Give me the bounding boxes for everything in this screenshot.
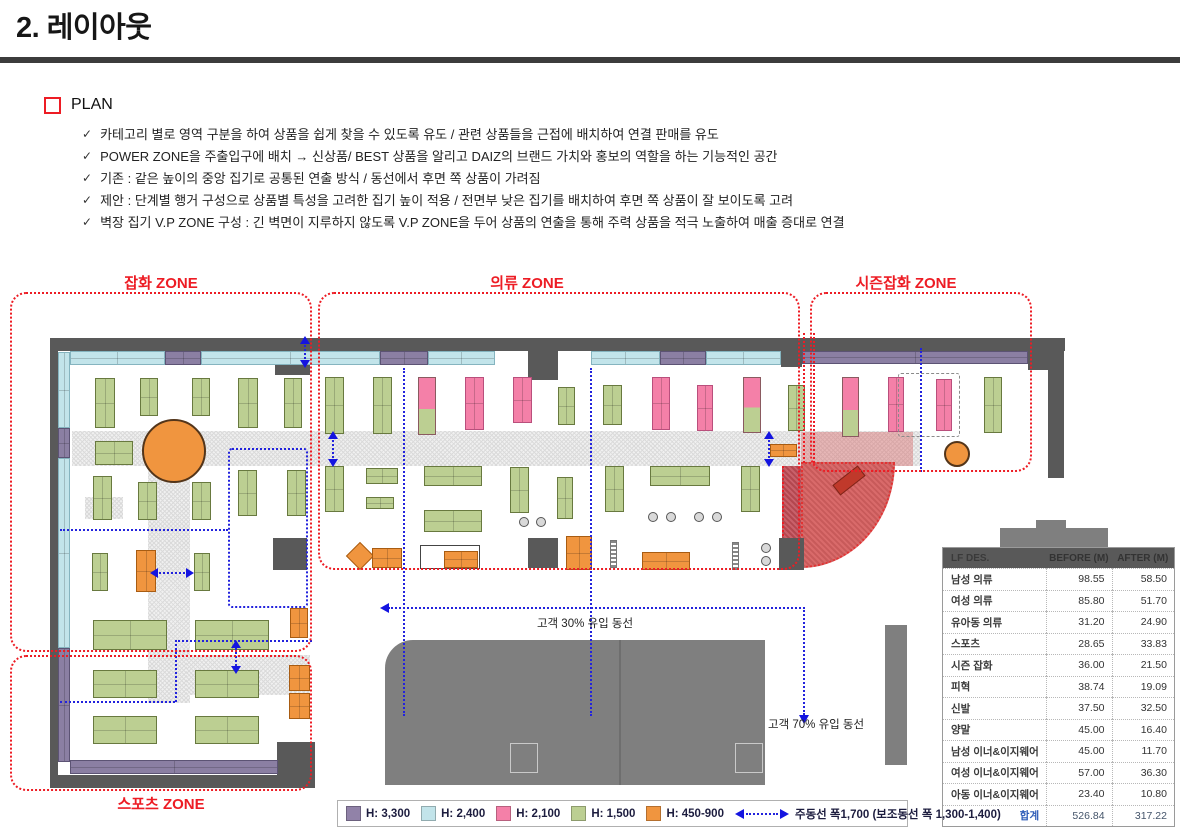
table-row: 아동 이너&이지웨어23.4010.80	[943, 783, 1174, 805]
legend-item: H: 1,500	[571, 806, 635, 821]
row-label: 여성 이너&이지웨어	[943, 762, 1046, 784]
table-row: 시즌 잡화36.0021.50	[943, 654, 1174, 676]
table-row: 피혁38.7419.09	[943, 676, 1174, 698]
table-header-after: AFTER (M)	[1112, 548, 1174, 568]
row-value: 36.00	[1046, 654, 1111, 676]
legend-swatch-icon	[571, 806, 586, 821]
zone-boundary-season	[810, 292, 1032, 472]
arrow-right-icon	[780, 809, 789, 819]
row-value: 37.50	[1046, 697, 1111, 719]
mall-block	[1036, 520, 1066, 529]
legend-item-label: H: 450-900	[666, 808, 724, 820]
legend-item-label: H: 2,100	[516, 808, 560, 820]
table-row: 스포츠28.6533.83	[943, 633, 1174, 655]
legend-item: H: 3,300	[346, 806, 410, 821]
row-value: 526.84	[1046, 805, 1111, 827]
row-label: 스포츠	[943, 633, 1046, 655]
power-zone-boundary-line	[803, 333, 805, 463]
legend-flow-label: 주동선 폭1,700 (보조동선 폭 1,300-1,400)	[795, 806, 1001, 822]
power-zone-boundary-line	[813, 333, 815, 463]
table-body: 남성 의류98.5558.50여성 의류85.8051.70유아동 의류31.2…	[943, 568, 1174, 826]
legend-items: H: 3,300H: 2,400H: 2,100H: 1,500H: 450-9…	[346, 806, 735, 821]
legend-item: H: 2,400	[421, 806, 485, 821]
row-value: 45.00	[1046, 719, 1111, 741]
row-value: 28.65	[1046, 633, 1111, 655]
row-value: 51.70	[1112, 590, 1174, 612]
row-label: 남성 의류	[943, 568, 1046, 590]
legend-flow-item: 주동선 폭1,700 (보조동선 폭 1,300-1,400)	[735, 806, 1001, 822]
zone-boundary-sports	[10, 655, 312, 791]
table-row: 남성 의류98.5558.50	[943, 568, 1174, 590]
row-value: 10.80	[1112, 783, 1174, 805]
table-row: 남성 이너&이지웨어45.0011.70	[943, 740, 1174, 762]
row-label: 피혁	[943, 676, 1046, 698]
table-row: 양말45.0016.40	[943, 719, 1174, 741]
row-value: 85.80	[1046, 590, 1111, 612]
lf-area-table: LF DES. BEFORE (M) AFTER (M) 남성 의류98.555…	[942, 547, 1175, 827]
table-row: 여성 의류85.8051.70	[943, 590, 1174, 612]
row-value: 58.50	[1112, 568, 1174, 590]
legend-swatch-icon	[496, 806, 511, 821]
table-header-row: LF DES. BEFORE (M) AFTER (M)	[943, 548, 1174, 568]
mall-block	[1000, 528, 1108, 547]
table-header-lf-des: LF DES.	[943, 548, 1046, 568]
row-value: 33.83	[1112, 633, 1174, 655]
row-value: 16.40	[1112, 719, 1174, 741]
mall-divider	[619, 640, 621, 785]
row-label: 유아동 의류	[943, 611, 1046, 633]
row-label: 여성 의류	[943, 590, 1046, 612]
zone-label-japwha: 잡화 ZONE	[71, 272, 251, 293]
legend-item-label: H: 3,300	[366, 808, 410, 820]
legend-swatch-icon	[346, 806, 361, 821]
flow-30-line	[388, 607, 805, 609]
mall-block	[885, 625, 907, 765]
flow-arrow-left	[380, 603, 389, 613]
zone-boundary-uiryu	[318, 292, 800, 570]
row-label: 신발	[943, 697, 1046, 719]
legend-item: H: 2,100	[496, 806, 560, 821]
legend: H: 3,300H: 2,400H: 2,100H: 1,500H: 450-9…	[337, 800, 908, 827]
row-value: 21.50	[1112, 654, 1174, 676]
flow-30-label: 고객 30% 유입 동선	[505, 615, 665, 631]
mall-notch	[510, 743, 538, 773]
slide-canvas: { "doc": {"title": "2. 레이아웃"}, "plan_sec…	[0, 0, 1180, 831]
row-value: 45.00	[1046, 740, 1111, 762]
row-label: 시즌 잡화	[943, 654, 1046, 676]
mall-block	[385, 640, 765, 785]
row-value: 24.90	[1112, 611, 1174, 633]
legend-swatch-icon	[646, 806, 661, 821]
row-value: 23.40	[1046, 783, 1111, 805]
zone-boundary-japwha	[10, 292, 312, 652]
zone-label-season: 시즌잡화 ZONE	[816, 272, 996, 293]
legend-item-label: H: 2,400	[441, 808, 485, 820]
row-value: 32.50	[1112, 697, 1174, 719]
row-value: 31.20	[1046, 611, 1111, 633]
table-row: 신발37.5032.50	[943, 697, 1174, 719]
row-value: 11.70	[1112, 740, 1174, 762]
row-value: 98.55	[1046, 568, 1111, 590]
dotted-line-icon	[746, 813, 778, 815]
flow-70-label: 고객 70% 유입 동선	[768, 716, 864, 732]
row-value: 317.22	[1112, 805, 1174, 827]
table-row: 여성 이너&이지웨어57.0036.30	[943, 762, 1174, 784]
legend-item-label: H: 1,500	[591, 808, 635, 820]
legend-swatch-icon	[421, 806, 436, 821]
row-value: 38.74	[1046, 676, 1111, 698]
legend-item: H: 450-900	[646, 806, 724, 821]
mall-notch	[735, 743, 763, 773]
table-row: 유아동 의류31.2024.90	[943, 611, 1174, 633]
zone-label-sports: 스포츠 ZONE	[71, 793, 251, 814]
arrow-left-icon	[735, 809, 744, 819]
row-label: 양말	[943, 719, 1046, 741]
table-header-before: BEFORE (M)	[1046, 548, 1111, 568]
row-label: 남성 이너&이지웨어	[943, 740, 1046, 762]
row-label: 아동 이너&이지웨어	[943, 783, 1046, 805]
flow-70-line	[803, 607, 805, 715]
row-value: 36.30	[1112, 762, 1174, 784]
row-value: 57.00	[1046, 762, 1111, 784]
zone-label-uiryu: 의류 ZONE	[437, 272, 617, 293]
row-value: 19.09	[1112, 676, 1174, 698]
